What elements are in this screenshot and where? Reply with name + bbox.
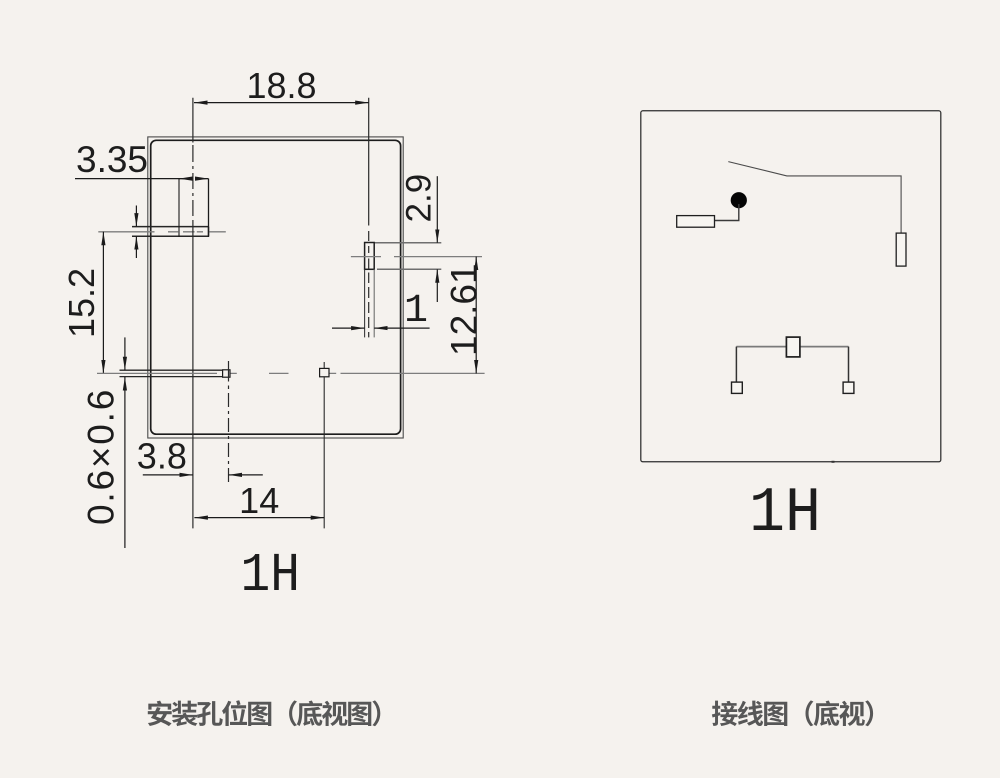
- svg-text:18.8: 18.8: [246, 65, 316, 106]
- svg-text:3.8: 3.8: [137, 435, 187, 476]
- svg-text:14: 14: [239, 480, 279, 521]
- svg-text:15.2: 15.2: [61, 268, 102, 338]
- svg-text:1: 1: [404, 289, 428, 334]
- svg-text:1H: 1H: [241, 544, 300, 607]
- svg-text:2.9: 2.9: [400, 174, 439, 223]
- svg-text:12.61: 12.61: [444, 263, 485, 356]
- svg-text:0.6×0.6: 0.6×0.6: [81, 388, 122, 525]
- svg-text:3.35: 3.35: [76, 139, 148, 180]
- svg-text:1H: 1H: [749, 478, 821, 549]
